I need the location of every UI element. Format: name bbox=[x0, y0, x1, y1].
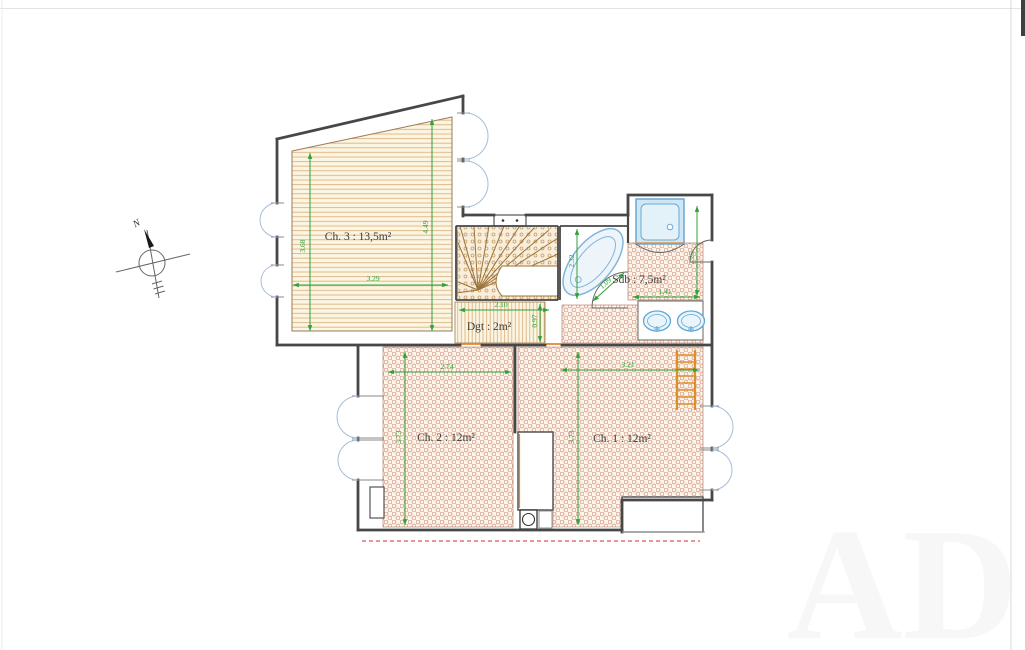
stair-landing bbox=[496, 266, 558, 296]
compass: N bbox=[116, 217, 190, 298]
room-label-sdb: Sdb : 7,5m² bbox=[612, 274, 666, 286]
window-icon bbox=[465, 161, 488, 207]
dim-bath-length: 2.32 bbox=[567, 254, 576, 267]
window-icon bbox=[465, 113, 488, 159]
dim-ch3-left: 3.68 bbox=[298, 239, 307, 252]
window-icon bbox=[712, 450, 732, 490]
closet bbox=[518, 432, 553, 510]
dim-ch1-width: 3.21 bbox=[621, 360, 634, 369]
dim-ch3-right: 4.49 bbox=[421, 220, 430, 233]
room-label-dgt: Dgt : 2m² bbox=[467, 321, 512, 333]
scrollbar-thumb[interactable] bbox=[1021, 0, 1025, 36]
compass-needle bbox=[144, 229, 154, 248]
closet-shelf bbox=[539, 511, 552, 528]
dim-ch2-depth: 3.73 bbox=[394, 430, 403, 443]
stair-guard bbox=[494, 215, 526, 226]
dim-dgt-depth: 0.97 bbox=[530, 314, 539, 327]
shower bbox=[636, 199, 684, 253]
compass-south-hatches bbox=[152, 281, 165, 294]
sink-right bbox=[678, 311, 705, 332]
room-label-ch2: Ch. 2 : 12m² bbox=[417, 432, 475, 444]
window-icon bbox=[337, 396, 358, 438]
watermark: AD bbox=[787, 495, 1018, 650]
window-icon bbox=[338, 440, 358, 480]
room-label-ch3: Ch. 3 : 13,5m² bbox=[325, 231, 392, 243]
window-icon bbox=[260, 203, 277, 237]
north-label: N bbox=[130, 217, 143, 231]
dim-ch1-depth: 3.73 bbox=[567, 430, 576, 443]
dim-ch3-width: 3.29 bbox=[366, 274, 379, 283]
dim-sdb-height: 2.25 bbox=[687, 251, 696, 264]
window-icon bbox=[261, 265, 277, 297]
dormer-notch bbox=[622, 497, 703, 532]
dim-ch2-width: 2.74 bbox=[440, 362, 453, 371]
radiator-niche bbox=[370, 487, 384, 518]
dim-dgt-width: 2.10 bbox=[494, 300, 507, 309]
floor-plan-page: AD bbox=[0, 0, 1025, 650]
dim-sdb-vanity: 1.41 bbox=[658, 287, 671, 296]
floor-plan-drawing: AD bbox=[0, 0, 1025, 650]
bathtub bbox=[552, 219, 634, 306]
window-icon bbox=[712, 406, 733, 448]
room-label-ch1: Ch. 1 : 12m² bbox=[593, 433, 651, 445]
sink-left bbox=[644, 311, 671, 332]
